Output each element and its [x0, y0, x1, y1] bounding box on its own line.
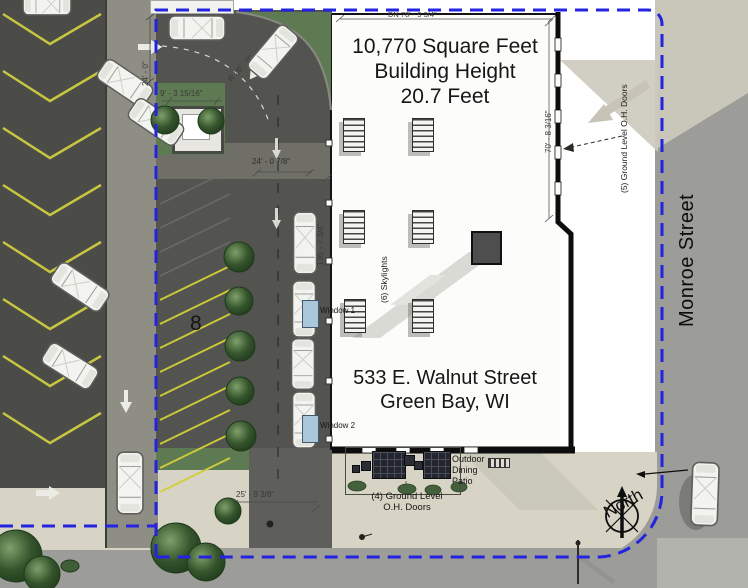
patio-table	[423, 451, 451, 479]
site-plan: 10,770 Square Feet Building Height 20.7 …	[0, 0, 748, 588]
dim-east-wall: 70' - 8 3/16"	[544, 110, 553, 153]
building-title-line1: 10,770 Square Feet	[332, 34, 558, 59]
dim-west-wall: 136' - 7 3/4"	[316, 223, 325, 266]
patio-label-line2: Dining	[452, 466, 478, 476]
stall-count-label: 8	[190, 312, 202, 335]
skylight	[343, 118, 365, 152]
dim-aisle-width: 24' - 0 7/8"	[252, 158, 290, 167]
patio-label-line1: Outdoor	[452, 455, 485, 465]
south-oh-doors-label-line1: (4) Ground Level	[352, 492, 462, 502]
building-title-line3: 20.7 Feet	[332, 84, 558, 109]
car	[691, 462, 720, 526]
south-oh-doors-label-line2: O.H. Doors	[352, 503, 462, 513]
skylights-label: (6) Skylights	[379, 256, 389, 303]
monroe-street-label: Monroe Street	[676, 194, 699, 327]
car	[23, 0, 71, 15]
trees	[0, 106, 256, 588]
roof-shadows	[352, 60, 658, 510]
patio-chair	[414, 461, 423, 470]
patio-label-line3: Patio	[452, 477, 473, 487]
car	[40, 341, 100, 391]
window2-marker	[302, 415, 319, 443]
car	[292, 339, 315, 389]
skylight	[412, 299, 434, 333]
window2-label: Window 2	[320, 422, 355, 431]
patio-chair	[361, 461, 371, 471]
stall-striping	[160, 266, 230, 492]
aisle-flow-arrows	[272, 138, 281, 229]
patio-table	[372, 451, 406, 479]
dim-south-drive: 25' - 9 3/8"	[236, 491, 274, 500]
street-furniture	[267, 521, 615, 585]
stall-striping-faint	[160, 170, 230, 276]
car	[169, 16, 225, 40]
roof-access-unit	[471, 231, 502, 265]
patio-chair	[352, 465, 360, 473]
patio-awning-icon	[488, 458, 510, 468]
dim-enclosure: 9' - 3 15/16"	[160, 90, 203, 99]
van	[117, 452, 143, 514]
building-address-line1: 533 E. Walnut Street	[332, 366, 558, 390]
skylight	[412, 118, 434, 152]
car	[246, 23, 300, 81]
skylight	[343, 210, 365, 244]
dim-north-wall: DN 78' - 9 3/4"	[388, 11, 437, 19]
car	[49, 260, 111, 313]
skylight	[412, 210, 434, 244]
skylight	[344, 299, 366, 333]
window1-marker	[302, 300, 319, 328]
east-oh-doors-label: (5) Ground Level O.H. Doors	[619, 84, 629, 193]
window1-label: Window 1	[320, 307, 355, 316]
dim-entry-drive: 24' - 0"	[141, 61, 150, 86]
building-address-line2: Green Bay, WI	[332, 390, 558, 414]
building-title-line2: Building Height	[332, 59, 558, 84]
car	[294, 212, 317, 274]
